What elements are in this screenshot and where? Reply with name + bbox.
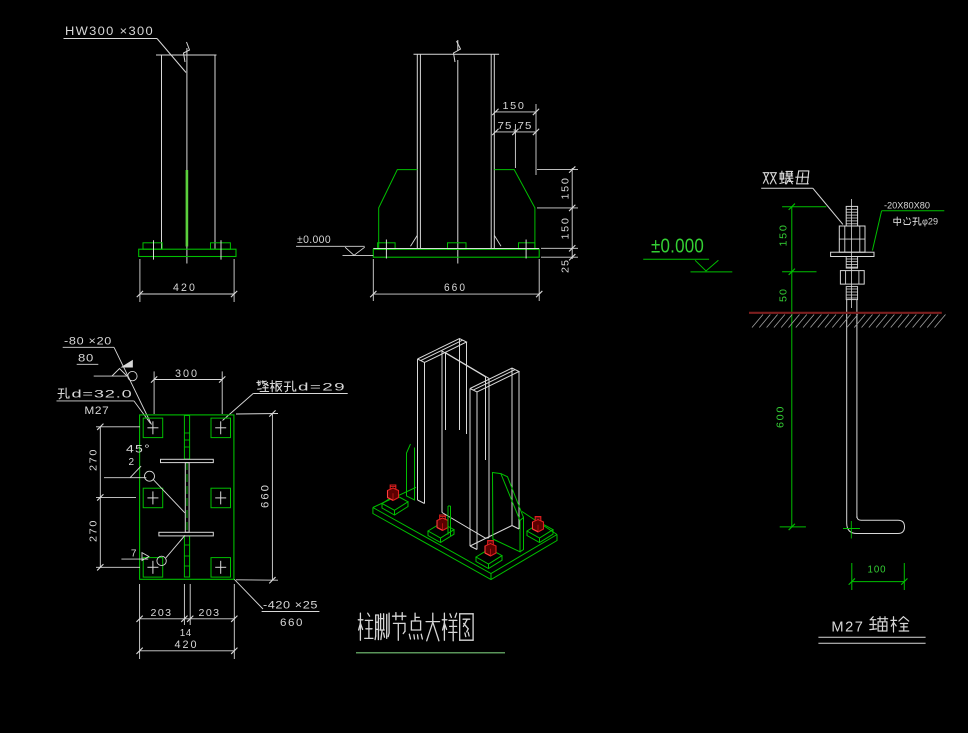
- svg-text:d=32.0: d=32.0: [72, 389, 133, 401]
- svg-text:100: 100: [868, 564, 887, 576]
- svg-text:14: 14: [180, 627, 192, 639]
- svg-text:-20X80X80: -20X80X80: [884, 201, 930, 211]
- svg-text:420: 420: [175, 639, 199, 651]
- svg-text:150: 150: [560, 217, 572, 240]
- svg-text:75: 75: [498, 120, 513, 132]
- svg-text:±0.000: ±0.000: [297, 234, 331, 246]
- svg-text:150: 150: [503, 100, 526, 112]
- svg-text:660: 660: [444, 282, 467, 294]
- svg-text:d=29: d=29: [298, 382, 346, 394]
- svg-text:420: 420: [173, 282, 197, 294]
- svg-text:M27: M27: [831, 620, 864, 636]
- svg-text:150: 150: [778, 224, 790, 247]
- svg-text:203: 203: [199, 607, 221, 619]
- svg-text:2: 2: [129, 457, 135, 468]
- svg-text:25: 25: [560, 259, 572, 273]
- svg-text:-420 ×25: -420 ×25: [263, 600, 318, 612]
- svg-text:45°: 45°: [126, 444, 151, 456]
- svg-text:±0.000: ±0.000: [651, 235, 704, 257]
- svg-text:φ29: φ29: [922, 217, 938, 227]
- svg-text:270: 270: [88, 519, 100, 542]
- svg-text:660: 660: [260, 483, 272, 508]
- svg-text:,: ,: [513, 123, 516, 134]
- svg-text:300: 300: [175, 368, 199, 380]
- svg-text:M27: M27: [84, 405, 109, 417]
- svg-text:660: 660: [280, 617, 304, 629]
- svg-text:7: 7: [131, 549, 137, 560]
- svg-text:203: 203: [151, 607, 173, 619]
- svg-text:600: 600: [775, 405, 787, 428]
- svg-text:270: 270: [88, 448, 100, 471]
- svg-text:75: 75: [518, 120, 533, 132]
- svg-text:150: 150: [560, 177, 572, 200]
- svg-text:80: 80: [78, 353, 94, 365]
- svg-text:HW300 ×300: HW300 ×300: [65, 26, 154, 38]
- svg-text:50: 50: [778, 288, 790, 302]
- svg-text:-80 ×20: -80 ×20: [64, 336, 112, 348]
